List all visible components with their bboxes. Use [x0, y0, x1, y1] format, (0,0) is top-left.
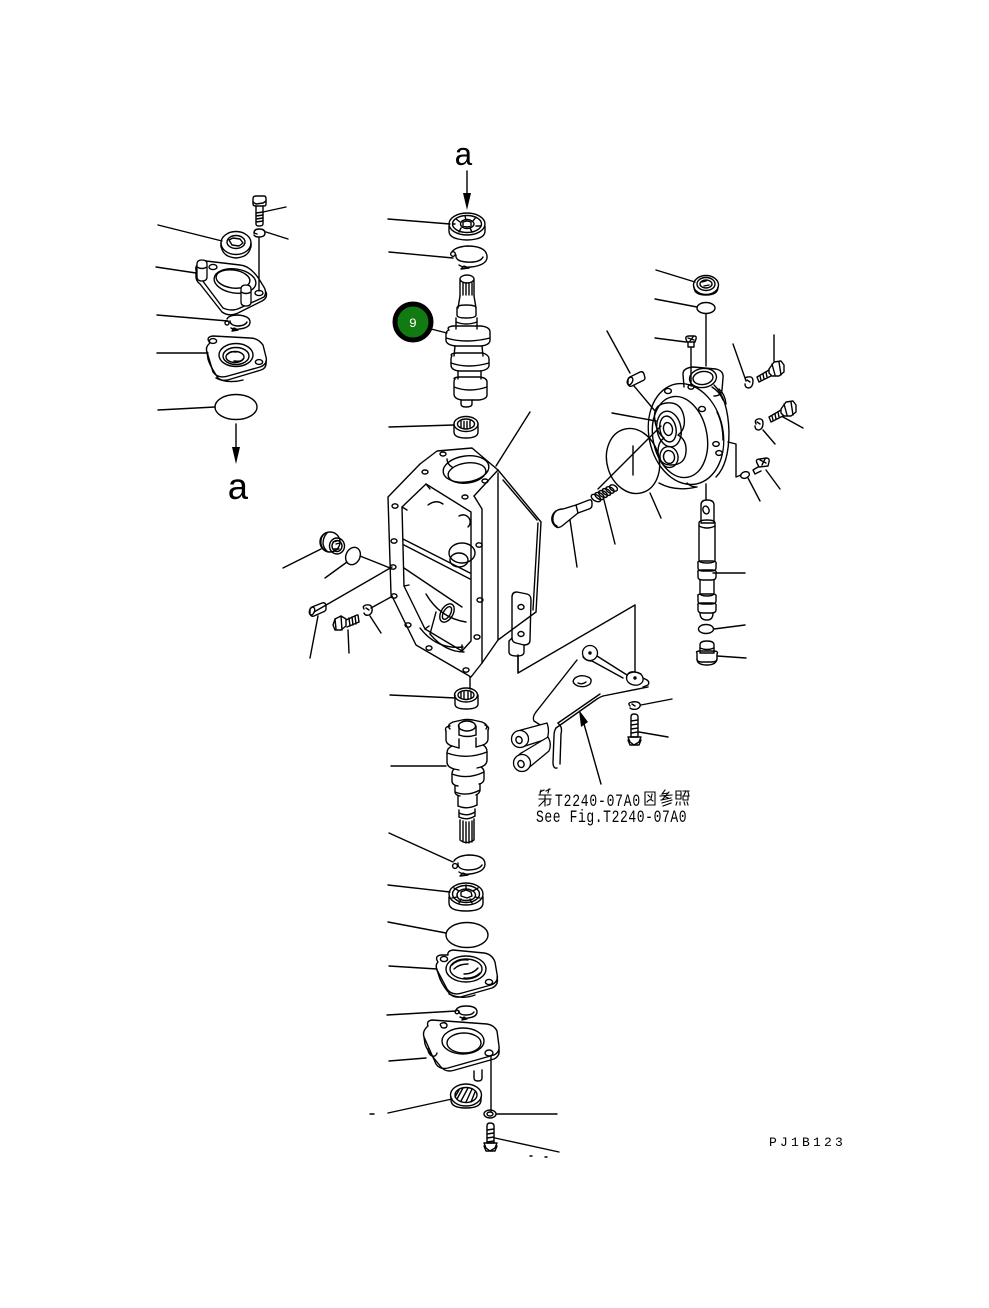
- svg-text:See Fig.T2240-07A0: See Fig.T2240-07A0: [536, 807, 687, 827]
- svg-text:9: 9: [409, 316, 417, 331]
- svg-text:a: a: [227, 469, 249, 511]
- svg-text:PJ1B123: PJ1B123: [769, 1135, 846, 1150]
- svg-text:a: a: [454, 138, 473, 175]
